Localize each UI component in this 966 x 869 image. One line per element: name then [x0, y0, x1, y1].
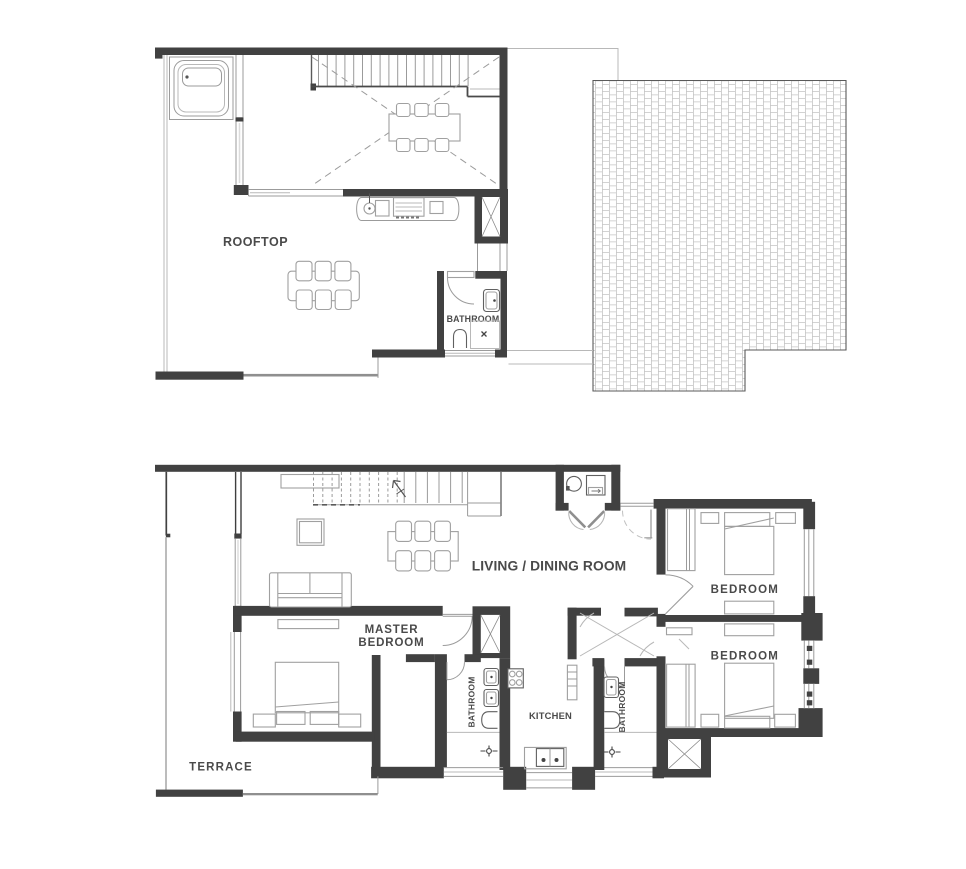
svg-text:LIVING / DINING ROOM: LIVING / DINING ROOM — [472, 559, 627, 574]
svg-text:BEDROOM: BEDROOM — [711, 584, 779, 596]
svg-text:KITCHEN: KITCHEN — [529, 710, 572, 721]
svg-text:BATHROOM: BATHROOM — [467, 676, 477, 727]
svg-text:ROOFTOP: ROOFTOP — [223, 235, 288, 249]
svg-text:BATHROOM: BATHROOM — [447, 314, 500, 324]
svg-text:TERRACE: TERRACE — [189, 762, 253, 774]
svg-text:BEDROOM: BEDROOM — [358, 637, 424, 649]
svg-text:MASTER: MASTER — [365, 624, 419, 636]
svg-text:BEDROOM: BEDROOM — [711, 651, 779, 663]
